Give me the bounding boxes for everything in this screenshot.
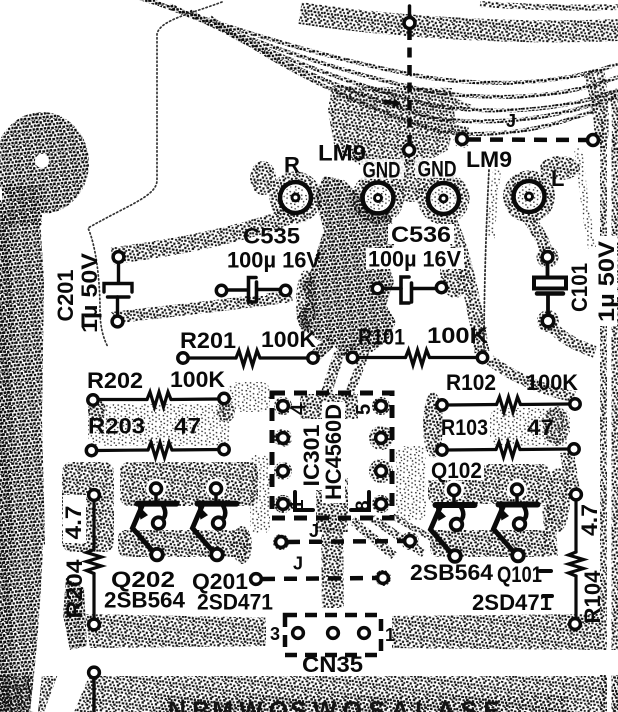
svg-text:1: 1 [287, 499, 308, 510]
svg-text:R203: R203 [88, 414, 145, 439]
svg-text:R: R [284, 153, 300, 178]
svg-text:R104: R104 [580, 570, 605, 624]
svg-text:2SD471: 2SD471 [472, 590, 552, 615]
svg-text:100K: 100K [427, 323, 488, 348]
svg-text:Q101: Q101 [497, 562, 542, 587]
svg-text:R204: R204 [62, 559, 87, 619]
svg-text:J: J [293, 554, 303, 574]
svg-text:100µ 16V: 100µ 16V [227, 248, 321, 273]
svg-text:GND: GND [363, 158, 401, 183]
svg-text:R202: R202 [87, 368, 143, 393]
svg-text:100µ 16V: 100µ 16V [368, 247, 461, 272]
svg-text:R101: R101 [358, 325, 405, 350]
svg-text:1µ 50V: 1µ 50V [77, 253, 102, 333]
svg-text:CN35: CN35 [302, 652, 363, 677]
svg-text:C536: C536 [391, 222, 451, 247]
svg-text:GND: GND [418, 157, 457, 182]
svg-text:C201: C201 [53, 270, 78, 322]
svg-text:LM9: LM9 [318, 141, 366, 166]
svg-text:LM9: LM9 [466, 147, 512, 172]
svg-text:J: J [309, 521, 319, 541]
svg-text:100K: 100K [526, 370, 578, 395]
svg-text:Q102: Q102 [431, 458, 482, 483]
svg-text:100K: 100K [261, 327, 316, 352]
svg-text:3: 3 [270, 624, 280, 644]
svg-text:1µ 50V: 1µ 50V [594, 241, 618, 322]
svg-text:J: J [506, 111, 516, 131]
svg-text:100K: 100K [170, 367, 225, 392]
svg-text:4.7: 4.7 [61, 506, 86, 540]
svg-text:C535: C535 [243, 224, 300, 249]
svg-text:47: 47 [174, 414, 201, 439]
svg-text:4: 4 [288, 403, 310, 415]
svg-text:C101: C101 [567, 263, 592, 312]
svg-text:HC4560D: HC4560D [321, 404, 346, 500]
svg-text:L: L [551, 166, 564, 191]
svg-text:R102: R102 [446, 370, 496, 395]
svg-text:47: 47 [527, 415, 554, 440]
svg-text:R103: R103 [441, 415, 488, 440]
svg-text:2SD471: 2SD471 [197, 590, 273, 615]
svg-text:5: 5 [353, 404, 375, 415]
svg-text:2SB564: 2SB564 [410, 560, 494, 585]
svg-text:R201: R201 [180, 328, 236, 353]
svg-text:1: 1 [385, 625, 395, 645]
svg-text:2SB564: 2SB564 [104, 588, 186, 613]
svg-text:4.7: 4.7 [577, 504, 602, 536]
svg-text:8: 8 [353, 500, 374, 511]
